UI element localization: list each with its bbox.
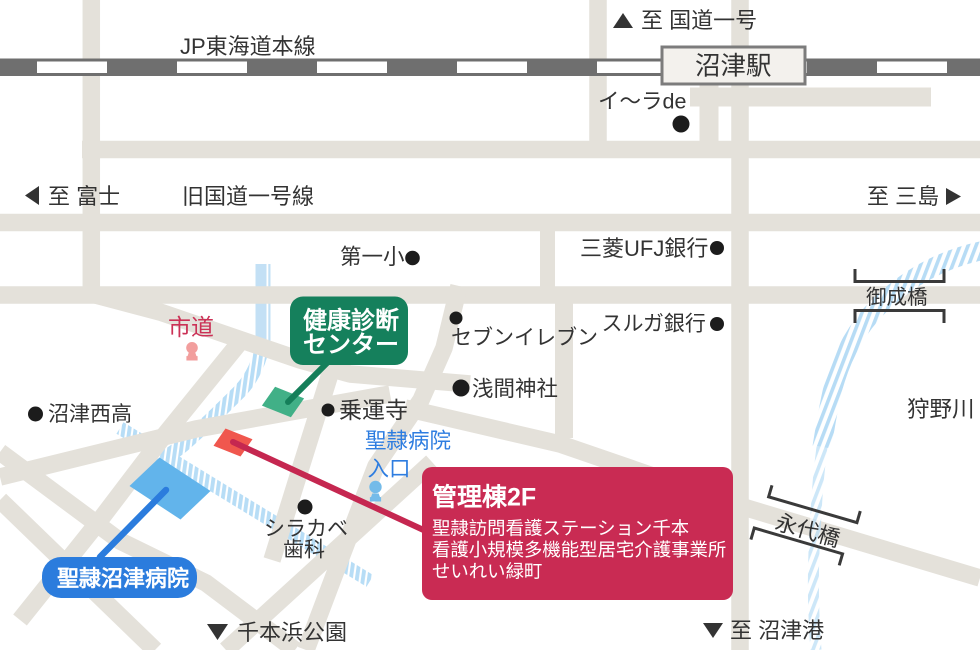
svg-text:聖隷沼津病院: 聖隷沼津病院 [57, 566, 189, 591]
svg-text:浅間神社: 浅間神社 [472, 377, 558, 401]
svg-text:歯科: 歯科 [283, 539, 325, 562]
svg-text:セブンイレブン: セブンイレブン [451, 327, 598, 350]
svg-text:センター: センター [303, 332, 399, 359]
svg-text:第一小: 第一小 [340, 245, 405, 269]
svg-text:スルガ銀行: スルガ銀行 [602, 313, 706, 336]
svg-text:三菱UFJ銀行: 三菱UFJ銀行 [580, 236, 708, 261]
svg-text:聖隷訪問看護ステーション千本: 聖隷訪問看護ステーション千本 [432, 518, 689, 539]
svg-text:シラカベ: シラカベ [264, 518, 348, 541]
svg-text:乗運寺: 乗運寺 [339, 397, 408, 423]
svg-text:沼津西高: 沼津西高 [48, 403, 132, 426]
svg-text:せいれい緑町: せいれい緑町 [432, 561, 542, 582]
svg-text:入口: 入口 [368, 457, 411, 481]
svg-text:至 富士: 至 富士 [48, 184, 120, 209]
svg-text:御成橋: 御成橋 [866, 286, 928, 309]
svg-text:至 沼津港: 至 沼津港 [730, 618, 824, 643]
svg-text:聖隷病院: 聖隷病院 [365, 429, 451, 453]
svg-text:イ〜ラde: イ〜ラde [598, 90, 686, 114]
svg-text:千本浜公園: 千本浜公園 [237, 620, 347, 645]
svg-text:旧国道一号線: 旧国道一号線 [182, 184, 314, 209]
svg-text:至 三島: 至 三島 [867, 184, 939, 209]
svg-text:健康診断: 健康診断 [303, 307, 399, 335]
svg-text:市道: 市道 [168, 314, 214, 340]
svg-text:JP東海道本線: JP東海道本線 [180, 34, 316, 59]
svg-text:狩野川: 狩野川 [907, 397, 975, 422]
svg-text:看護小規模多機能型居宅介護事業所: 看護小規模多機能型居宅介護事業所 [432, 539, 726, 560]
svg-text:沼津駅: 沼津駅 [695, 53, 772, 81]
svg-text:至 国道一号: 至 国道一号 [641, 8, 757, 33]
svg-text:管理棟2F: 管理棟2F [432, 483, 536, 512]
